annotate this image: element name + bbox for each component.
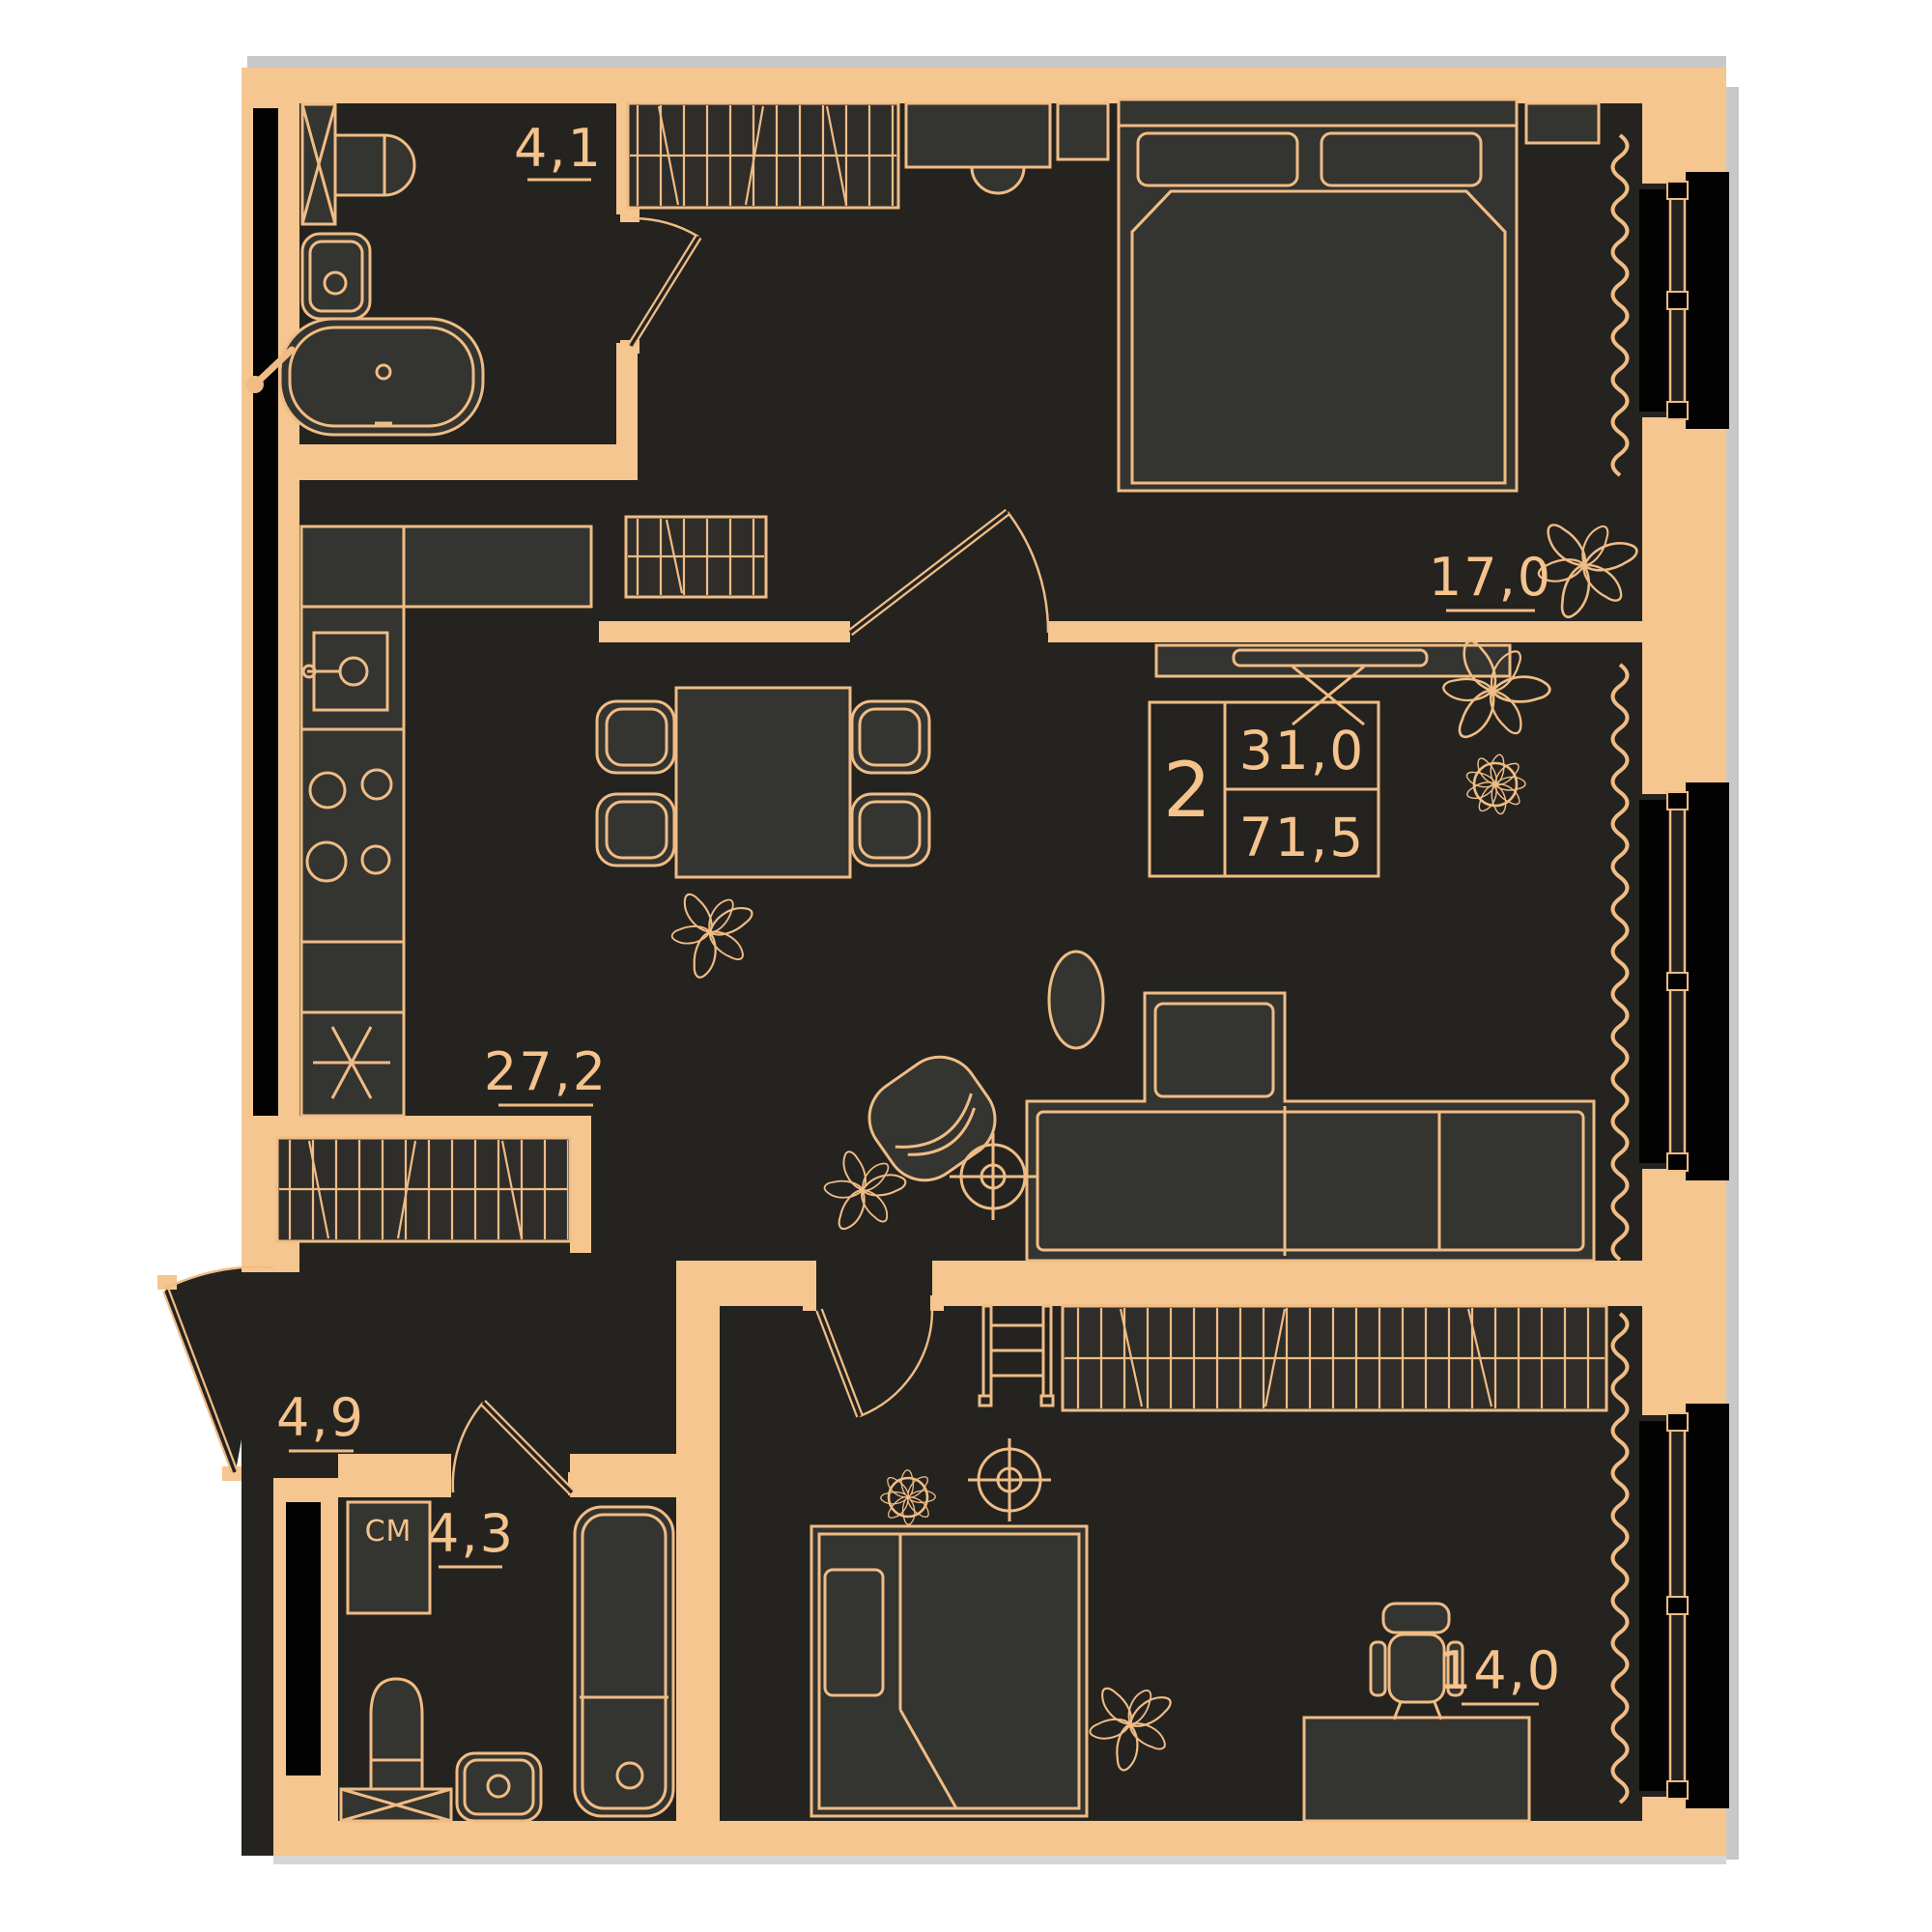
window-bedroom1 bbox=[1639, 172, 1729, 429]
label-bathroom2: 4,3 bbox=[426, 1503, 515, 1564]
label-kitchen-living: 27,2 bbox=[484, 1041, 608, 1102]
floor-plan-drawing: 2 31,0 71,5 bbox=[0, 0, 1932, 1932]
sink2-icon bbox=[457, 1753, 541, 1821]
window-living bbox=[1639, 782, 1729, 1180]
info-rooms: 2 bbox=[1163, 748, 1211, 835]
single-bed-icon bbox=[811, 1526, 1087, 1816]
desk2 bbox=[1304, 1718, 1529, 1821]
desk bbox=[906, 103, 1050, 167]
plant-sunflower-icon bbox=[881, 1470, 935, 1524]
dining-chair bbox=[597, 701, 674, 773]
dining-table bbox=[676, 688, 850, 877]
washing-box-icon bbox=[302, 104, 335, 224]
nightstand bbox=[1526, 103, 1599, 143]
label-bedroom1: 17,0 bbox=[1429, 547, 1552, 608]
toilet-icon bbox=[335, 135, 414, 195]
wardrobe-bedroom2 bbox=[1063, 1306, 1606, 1410]
info-total-area: 71,5 bbox=[1239, 807, 1365, 868]
toilet2-icon bbox=[371, 1679, 422, 1789]
label-washer: СМ bbox=[365, 1515, 412, 1548]
floor-plan-canvas: 2 31,0 71,5 bbox=[0, 0, 1932, 1932]
double-bed-icon bbox=[1119, 99, 1517, 491]
pouf bbox=[1049, 952, 1103, 1048]
wardrobe-bedroom1 bbox=[628, 103, 898, 208]
shower-cabin-icon bbox=[575, 1507, 673, 1816]
wardrobe-hallway bbox=[277, 1138, 570, 1241]
cabinet bbox=[1058, 103, 1108, 159]
label-hallway: 4,9 bbox=[276, 1387, 365, 1448]
dining-chair bbox=[852, 701, 929, 773]
label-bedroom2: 14,0 bbox=[1438, 1640, 1562, 1701]
shower-tray-icon bbox=[341, 1789, 451, 1821]
sink-icon bbox=[302, 234, 370, 319]
label-bathroom1: 4,1 bbox=[514, 118, 603, 179]
dining-chair bbox=[852, 794, 929, 866]
window-bedroom2 bbox=[1639, 1404, 1729, 1808]
wardrobe-vestibule bbox=[626, 517, 766, 597]
tv-icon bbox=[1234, 650, 1427, 666]
info-living-area: 31,0 bbox=[1239, 720, 1365, 781]
dining-chair bbox=[597, 794, 674, 866]
